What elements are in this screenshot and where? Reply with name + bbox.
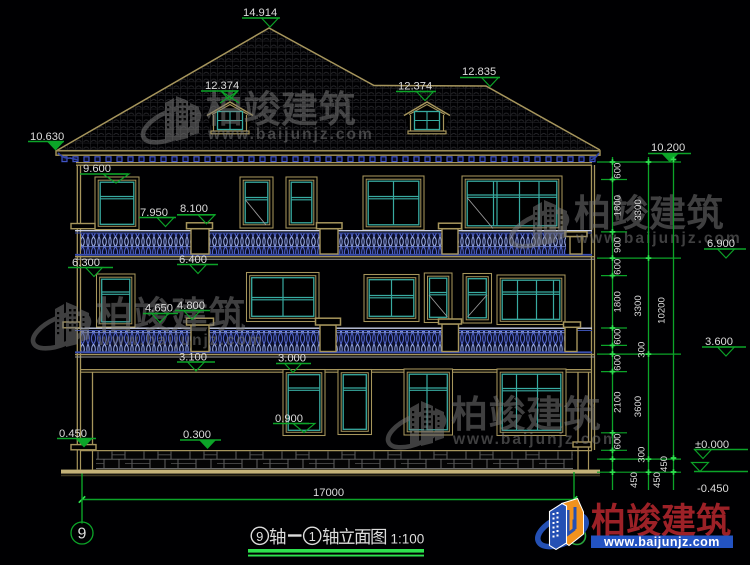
svg-text:www.baijunjz.com: www.baijunjz.com	[603, 535, 720, 549]
svg-text:600: 600	[613, 433, 624, 449]
svg-text:9: 9	[256, 529, 263, 544]
svg-text:17000: 17000	[313, 487, 344, 499]
svg-text:柏竣建筑: 柏竣建筑	[96, 294, 246, 336]
svg-text:轴: 轴	[269, 527, 287, 547]
svg-text:8.100: 8.100	[180, 203, 208, 215]
svg-text:www.baijunjz.com: www.baijunjz.com	[452, 431, 619, 448]
svg-text:www.baijunjz.com: www.baijunjz.com	[97, 332, 264, 349]
svg-text:10.200: 10.200	[651, 142, 685, 154]
svg-text:-0.450: -0.450	[697, 483, 729, 495]
svg-text:轴立面图: 轴立面图	[322, 527, 387, 547]
svg-text:3300: 3300	[633, 295, 644, 316]
svg-text:柏竣建筑: 柏竣建筑	[451, 393, 601, 435]
svg-text:9: 9	[78, 526, 87, 543]
svg-text:450: 450	[652, 472, 663, 488]
svg-text:300: 300	[637, 447, 648, 463]
svg-text:1800: 1800	[613, 291, 624, 312]
svg-text:3300: 3300	[633, 199, 644, 220]
svg-text:3600: 3600	[633, 396, 644, 417]
svg-text:1:100: 1:100	[391, 532, 425, 547]
svg-text:www.baijunjz.com: www.baijunjz.com	[207, 126, 374, 143]
svg-text:450: 450	[659, 456, 670, 472]
svg-text:12.835: 12.835	[462, 66, 496, 78]
svg-text:600: 600	[613, 329, 624, 345]
svg-text:600: 600	[613, 163, 624, 179]
svg-text:600: 600	[613, 259, 624, 275]
svg-text:600: 600	[613, 355, 624, 371]
svg-text:柏竣建筑: 柏竣建筑	[206, 88, 356, 130]
svg-text:900: 900	[613, 237, 624, 253]
svg-text:1800: 1800	[613, 195, 624, 216]
svg-text:1: 1	[309, 529, 316, 544]
svg-text:300: 300	[637, 342, 648, 358]
svg-text:2100: 2100	[613, 392, 624, 413]
svg-text:10200: 10200	[657, 297, 668, 324]
svg-text:450: 450	[629, 472, 640, 488]
